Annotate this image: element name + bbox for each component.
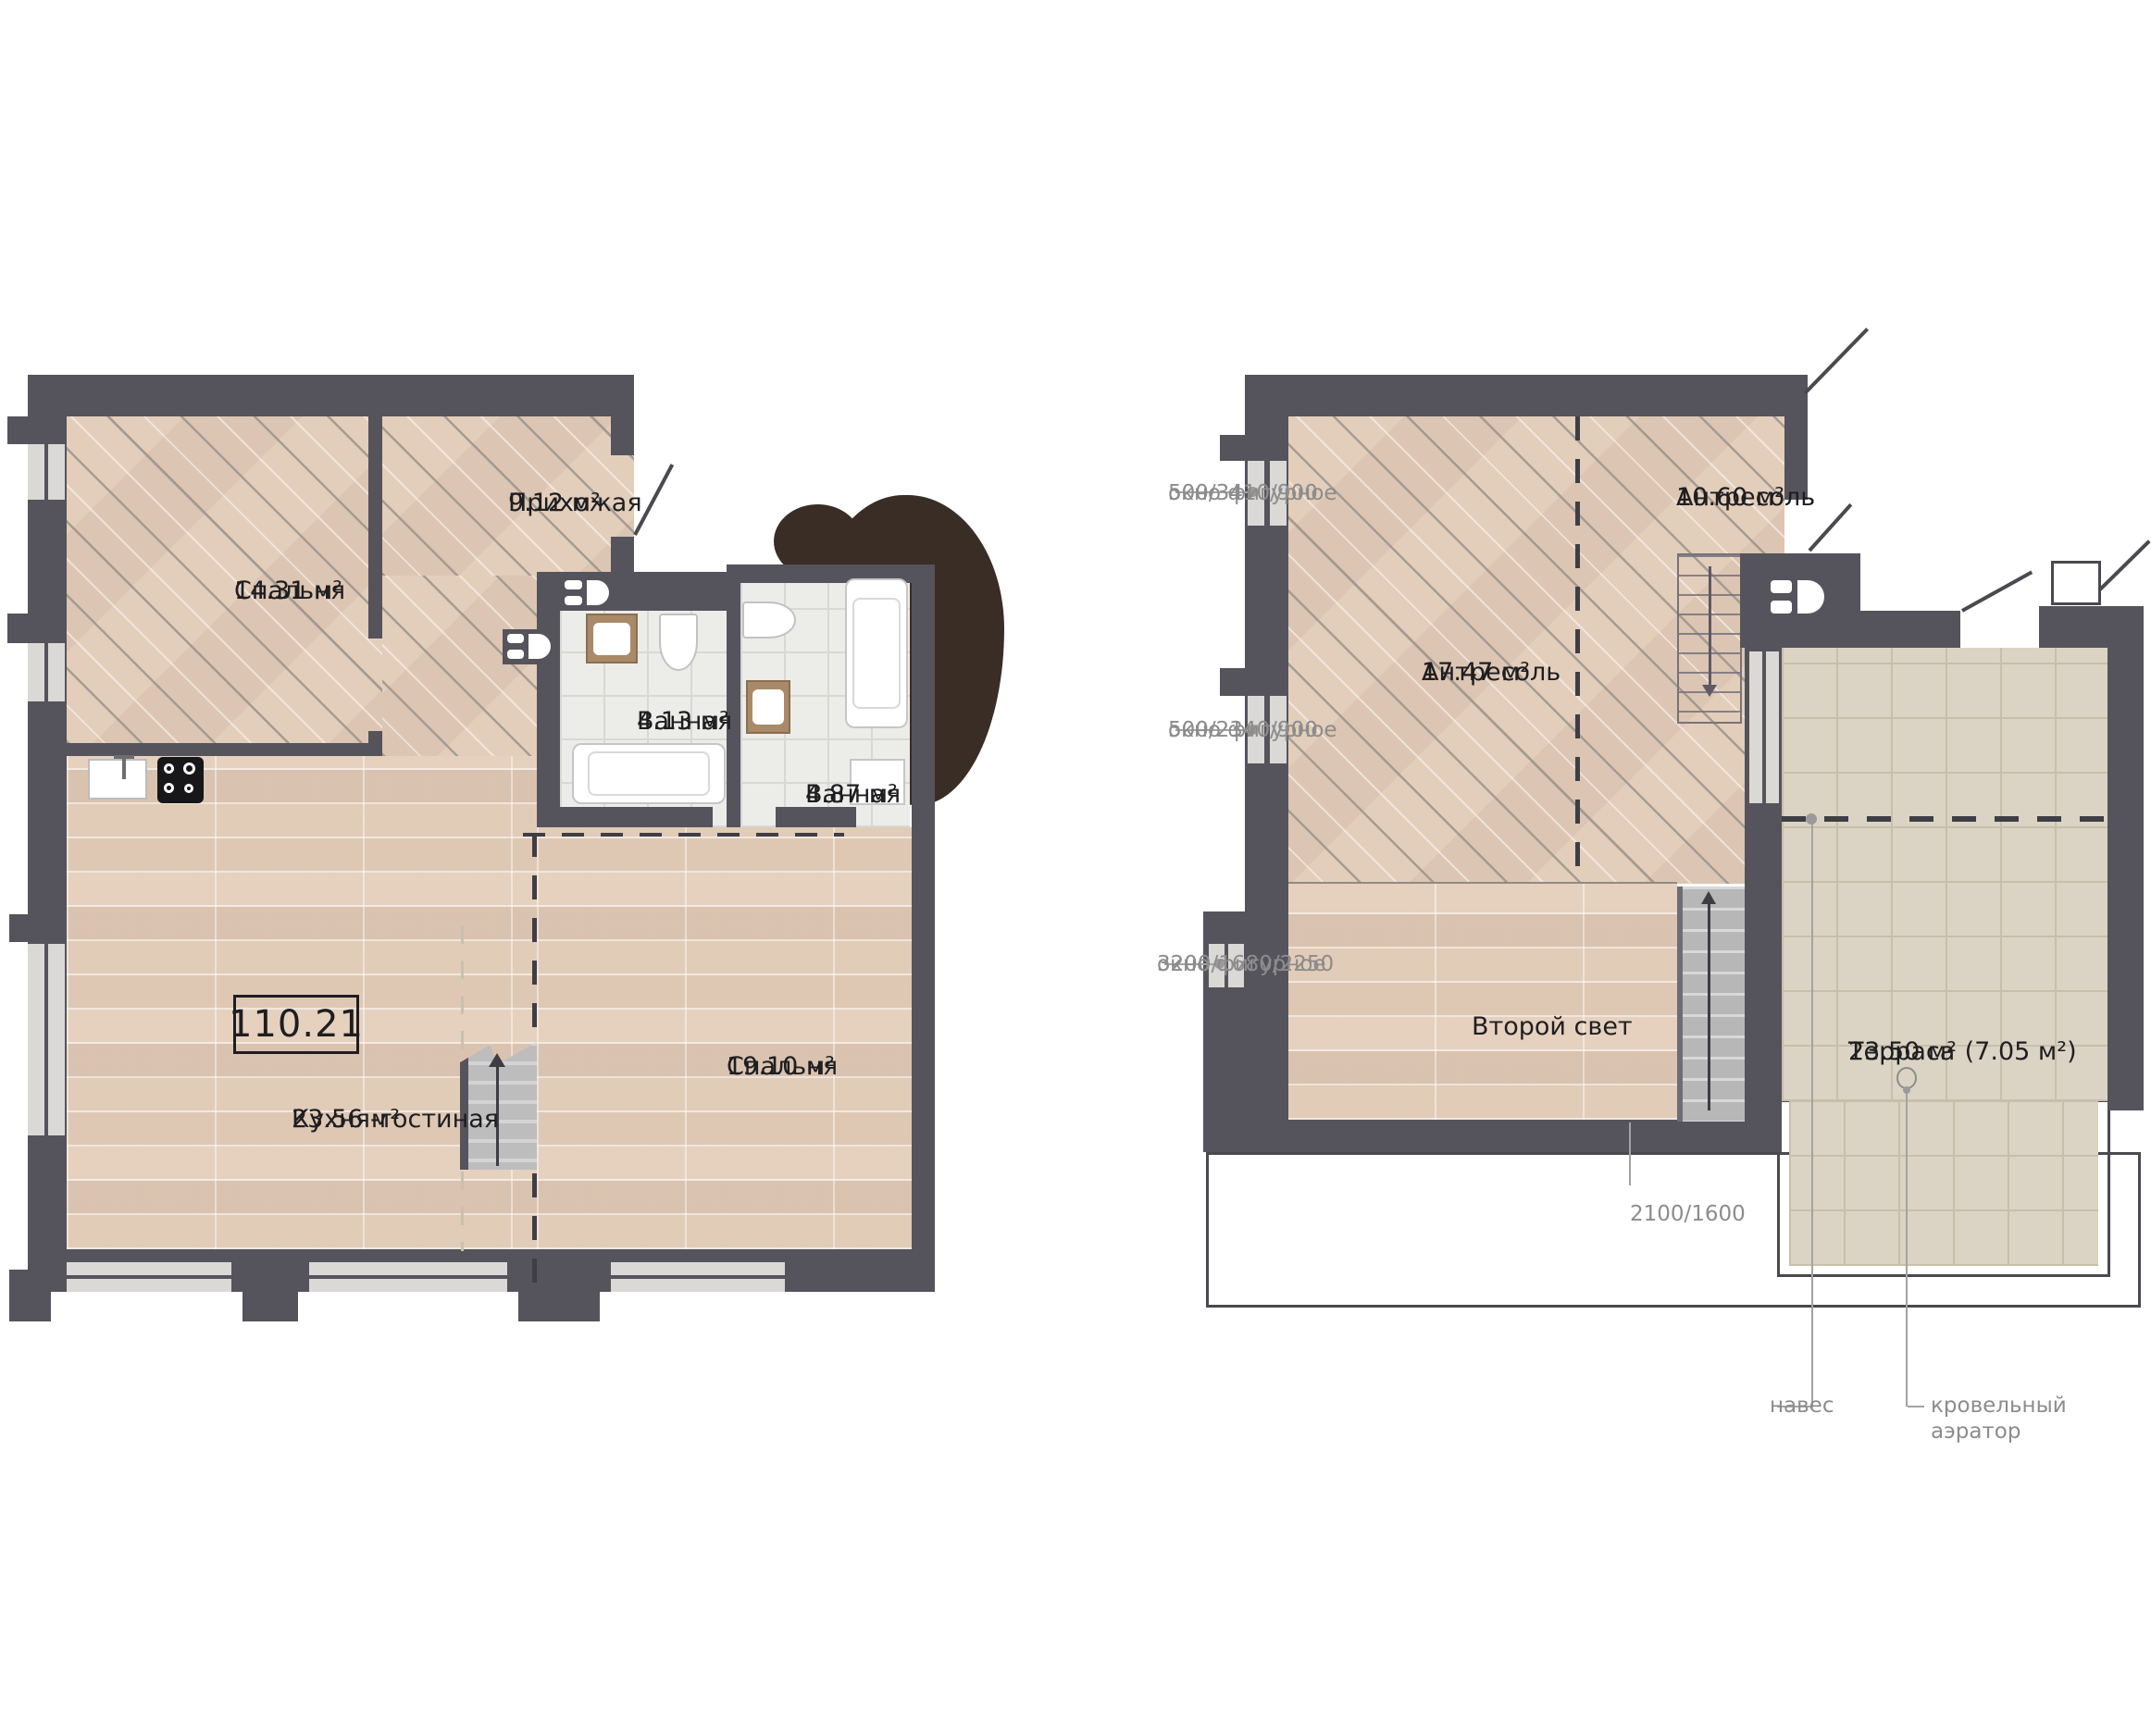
wall-segment (611, 416, 634, 455)
wall-segment (1245, 1120, 1782, 1152)
room-area: 23.50 м² (7.05 м²) (1848, 1036, 2077, 1067)
utility-shaft-icon (1740, 553, 1860, 648)
floor2-second-light-floor (1287, 884, 1677, 1120)
hatch-boundary (1287, 882, 1677, 884)
window (309, 1262, 507, 1292)
wall-segment (912, 564, 935, 1292)
room-area: 9.12 м² (508, 488, 601, 518)
window-type: окно фигурное (1168, 717, 1337, 743)
floorplan-canvas: Спальня 14.31 м² Прихожая 9.12 м² Ванная… (0, 0, 2151, 1736)
room-area: 14.31 м² (234, 576, 342, 606)
wall-stub (7, 614, 30, 643)
leader-dot (1806, 813, 1817, 825)
window (28, 444, 65, 500)
opening-dims: 2100/1600 (1630, 1199, 1746, 1230)
room-area: 10.60 м² (1676, 482, 1784, 513)
wall-stub (9, 914, 51, 942)
wall-stub (1220, 435, 1245, 461)
room-area: 4.87 м² (805, 779, 898, 810)
wall-segment (776, 807, 856, 827)
wall-segment (2107, 606, 2144, 1110)
utility-shaft-icon (560, 576, 617, 611)
kitchen-faucet (122, 755, 126, 779)
window (28, 643, 65, 701)
window (1749, 651, 1779, 803)
terrace-floor (1782, 648, 2107, 1101)
terrace-floor-under-canopy (1789, 1101, 2098, 1266)
wall-segment (611, 537, 634, 576)
toilet (659, 614, 698, 671)
room-name: Второй свет (1472, 1011, 1633, 1042)
window (28, 944, 65, 1135)
wall-segment (368, 416, 382, 639)
wall-segment (28, 375, 634, 416)
toilet (742, 601, 796, 639)
floor1-corridor-floor (382, 576, 537, 756)
window (67, 1262, 231, 1292)
aerator-label: кровельный аэратор (1931, 1393, 2079, 1445)
roof-edge-line (1804, 328, 1869, 394)
wall-segment (67, 743, 382, 756)
wall-stub (518, 1292, 600, 1321)
staircase-lower (1677, 887, 1745, 1122)
leader-line (1908, 1406, 1924, 1407)
zone-divider-dashed (523, 833, 844, 837)
leader-line (1629, 1122, 1631, 1185)
wall-segment (28, 375, 67, 1292)
leader-line (1906, 1092, 1908, 1407)
wall-segment (537, 807, 713, 827)
window (611, 1262, 785, 1292)
total-area-value: 110.21 (229, 1003, 364, 1046)
room-area: 19.10 м² (727, 1051, 835, 1082)
total-area-badge: 110.21 (233, 995, 359, 1054)
window-type: окно фигурное (1168, 480, 1337, 506)
roof-hatch-box (2051, 561, 2101, 605)
terrace-canopy-dashed-line (1782, 816, 2107, 822)
stair-arrow-head (1702, 685, 1717, 697)
zone-divider-dashed (1575, 416, 1580, 884)
stove (157, 757, 204, 803)
bathtub (845, 578, 908, 728)
floor1-bedroom2-floor (537, 827, 912, 1249)
room-area: 23.56 м² (292, 1104, 400, 1135)
wall-stub (7, 416, 30, 444)
bathroom-sink (586, 614, 638, 663)
utility-shaft-icon (503, 629, 558, 664)
stair-arrow-head (489, 1053, 505, 1067)
wall-segment (1784, 375, 1808, 500)
stair-arrow-head (1701, 891, 1716, 904)
door-leaf (1961, 571, 2033, 613)
wall-stub (9, 1270, 51, 1321)
wall-stub (242, 1292, 298, 1321)
kitchen-sink (88, 759, 147, 800)
window-type: окно фигурное (1157, 951, 1326, 977)
wall-stub (1220, 668, 1245, 696)
leader-line (1811, 821, 1813, 1407)
canopy-label: навес (1770, 1393, 1834, 1419)
wall-segment (1245, 375, 1808, 416)
bathtub (572, 743, 726, 804)
leader-dot (1903, 1086, 1910, 1094)
wall-segment (919, 807, 935, 827)
stair-arrow (1709, 566, 1711, 687)
room-area: 4.13 м² (637, 706, 729, 737)
stair-arrow (1708, 902, 1710, 1110)
roof-edge-line (2098, 539, 2151, 591)
bathroom-sink (746, 680, 790, 734)
room-area: 17.47 м² (1422, 657, 1530, 688)
wall-segment (727, 572, 740, 827)
